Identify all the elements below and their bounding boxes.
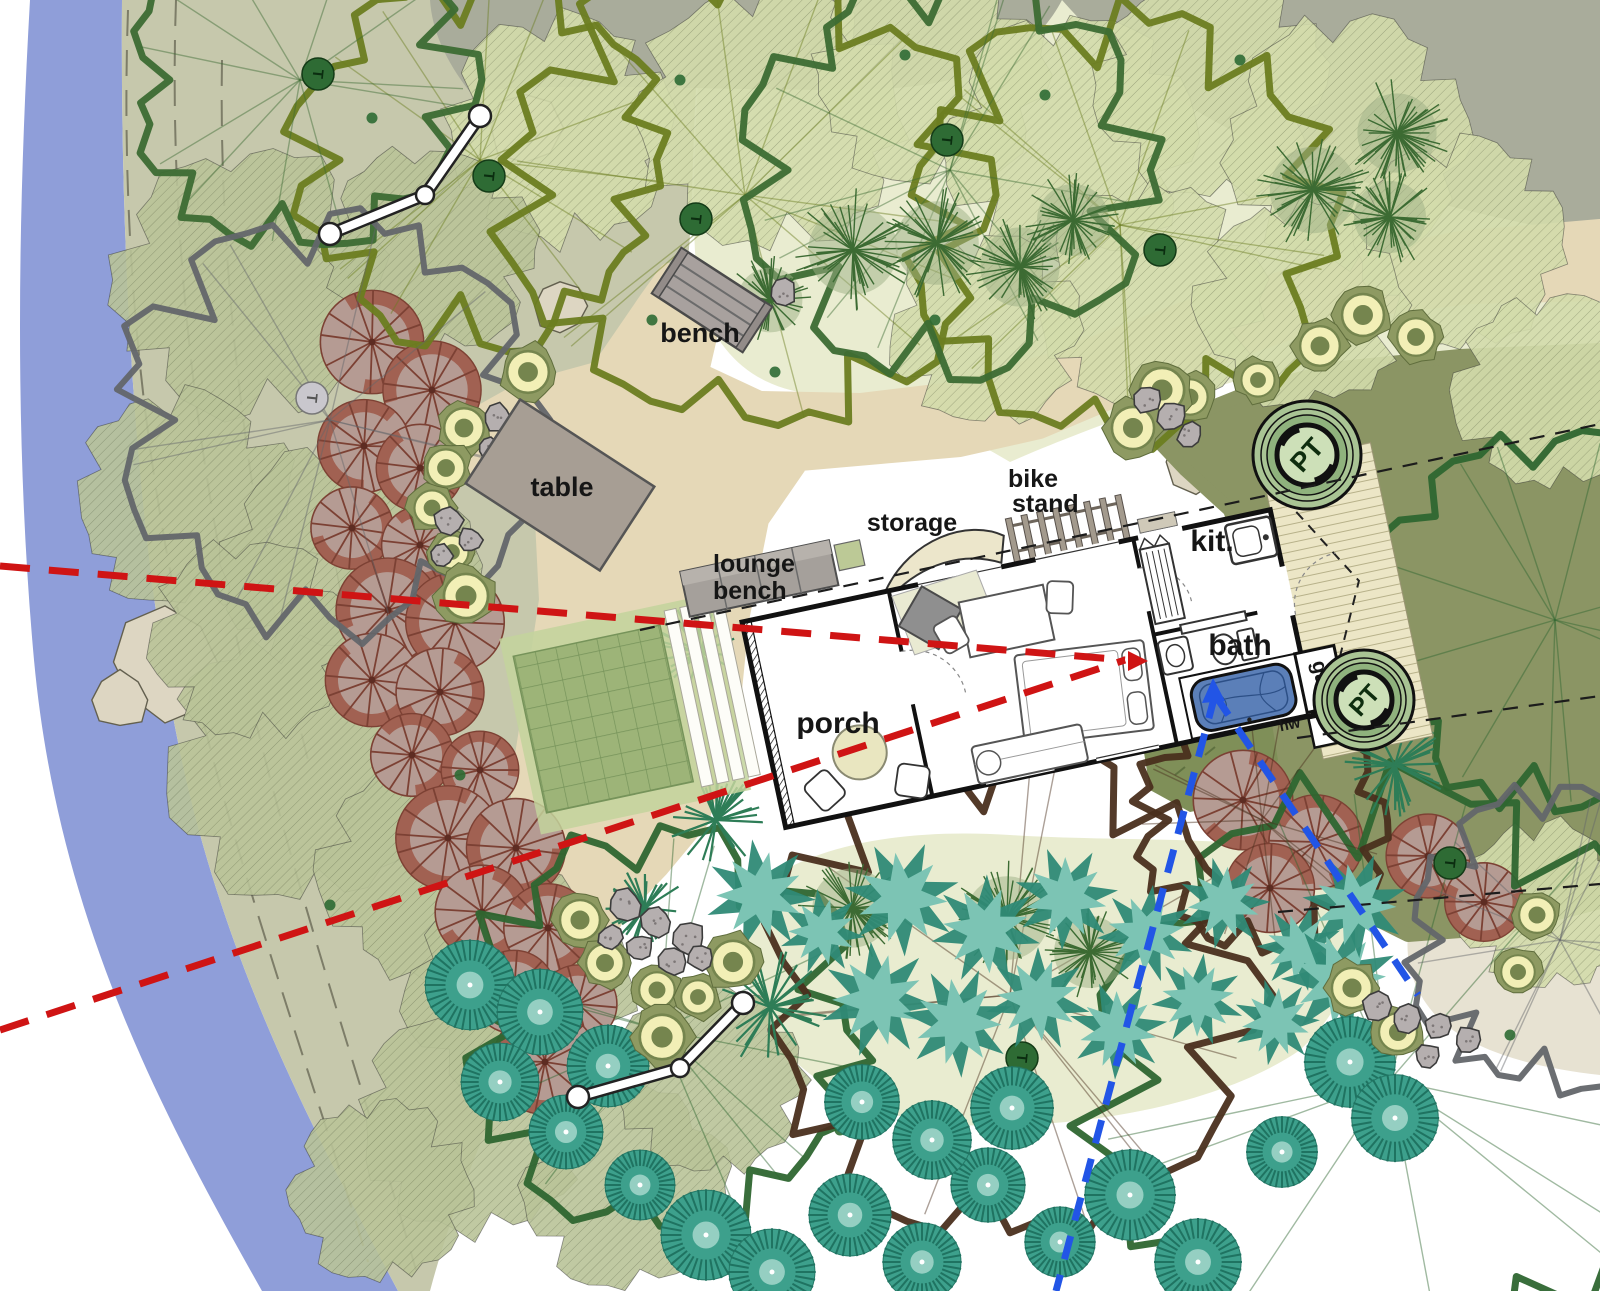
log-feature-node <box>319 223 341 245</box>
tree-trunk-marker: T <box>296 382 328 414</box>
lounge-bench-label-2: bench <box>713 577 787 605</box>
trunk-letter: T <box>1441 857 1459 868</box>
bike-stand-label-1: bike <box>1008 465 1058 493</box>
tree-trunk-marker: T <box>680 203 712 235</box>
stone <box>688 946 712 971</box>
pinwheel-shrub <box>808 1173 892 1257</box>
stone <box>1457 1028 1481 1053</box>
small-trunk-dot <box>325 900 336 911</box>
trunk-letter: T <box>938 134 956 145</box>
small-trunk-dot <box>900 50 911 61</box>
paver-grid <box>513 625 693 813</box>
porch-label: porch <box>796 707 879 740</box>
log-feature-node <box>416 186 434 204</box>
stone <box>1425 1014 1451 1038</box>
stone <box>627 937 652 960</box>
tree-trunk-marker: T <box>931 124 963 156</box>
log-feature-node <box>732 992 754 1014</box>
small-trunk-dot <box>647 315 658 326</box>
pinwheel-shrub <box>460 1042 539 1121</box>
small-trunk-dot <box>1505 1030 1516 1041</box>
trunk-letter: T <box>687 213 705 224</box>
pinwheel-shrub <box>882 1222 962 1291</box>
log-feature-node <box>567 1086 589 1108</box>
pinwheel-shrub <box>1084 1149 1176 1241</box>
lounge-bench-label-1: lounge <box>713 550 795 578</box>
trunk-letter: T <box>1151 244 1169 255</box>
trunk-letter: T <box>480 170 498 181</box>
small-trunk-dot <box>367 113 378 124</box>
pt-marker-1: PT <box>1253 401 1361 509</box>
pinwheel-shrub <box>1024 1206 1095 1277</box>
pinwheel-shrub <box>1246 1116 1318 1188</box>
site-plan-page: TTTTTTTTTT <box>0 0 1600 1291</box>
washbasin <box>1157 636 1193 675</box>
tree-trunk-marker: T <box>302 58 334 90</box>
pinwheel-shrub <box>496 968 583 1055</box>
bike-stand-label-2: stand <box>1012 490 1079 518</box>
trunk-letter: T <box>1013 1052 1031 1063</box>
log-feature-node <box>671 1059 689 1077</box>
trunk-letter: T <box>309 68 327 79</box>
small-trunk-dot <box>1040 90 1051 101</box>
tree-trunk-marker: T <box>1144 234 1176 266</box>
bath-label: bath <box>1208 629 1271 662</box>
pinwheel-shrub <box>1351 1074 1439 1162</box>
trunk-letter: T <box>303 392 321 403</box>
small-trunk-dot <box>455 770 466 781</box>
stone <box>1134 388 1160 413</box>
kitchen-label: kit. <box>1190 525 1233 558</box>
pinwheel-shrub <box>528 1094 603 1169</box>
umbrella-tree <box>311 487 393 569</box>
small-trunk-dot <box>1235 55 1246 66</box>
tree-trunk-marker: T <box>473 160 505 192</box>
tree-trunk-marker: T <box>1434 847 1466 879</box>
pinwheel-shrub <box>892 1100 972 1180</box>
pinwheel-shrub <box>1154 1218 1242 1291</box>
umbrella-tree <box>371 714 454 797</box>
stone <box>771 278 794 306</box>
storage-label: storage <box>867 509 957 537</box>
small-trunk-dot <box>930 315 941 326</box>
pt-marker-2: PT <box>1314 650 1414 750</box>
site-plan-drawing: TTTTTTTTTT <box>0 0 1600 1291</box>
table-label: table <box>530 472 593 502</box>
small-trunk-dot <box>675 75 686 86</box>
small-trunk-dot <box>770 367 781 378</box>
pinwheel-shrub <box>824 1064 900 1140</box>
pinwheel-shrub <box>604 1149 675 1220</box>
log-feature-node <box>469 105 491 127</box>
bench-label: bench <box>660 318 740 348</box>
stone <box>1394 1004 1421 1034</box>
pinwheel-shrub <box>970 1066 1054 1150</box>
